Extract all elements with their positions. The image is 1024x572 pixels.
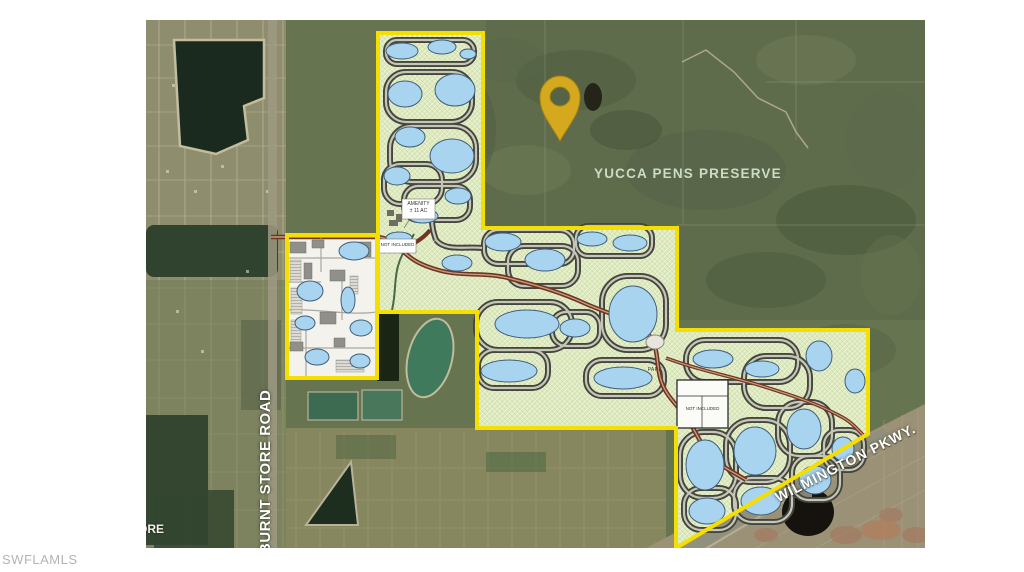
plan-label-not-included-upper: NOT INCLUDED (380, 242, 415, 248)
not-included-parcel-lower (677, 380, 728, 428)
plan-label-amenity: AMENITY ± 11 AC (403, 201, 434, 215)
amenity-label-line1: AMENITY (403, 201, 434, 208)
road-label-burnt-store-road: BURNT STORE ROAD (257, 387, 283, 548)
park-site (646, 335, 664, 349)
satellite-map-image: YUCCA PENS PRESERVE BURNT STORE ROAD WIL… (146, 20, 925, 548)
road-label-fragment: ORE (146, 522, 164, 536)
plan-label-not-included-lower: NOT INCLUDED (679, 406, 726, 412)
amenity-label-line2: ± 11 AC (403, 208, 434, 215)
listing-photo: YUCCA PENS PRESERVE BURNT STORE ROAD WIL… (0, 0, 1024, 572)
mls-watermark: SWFLAMLS (2, 552, 78, 567)
plan-label-park: PARK (642, 367, 668, 374)
tree-stand (584, 83, 602, 111)
region-label-yucca-pens-preserve: YUCCA PENS PRESERVE (594, 166, 782, 181)
